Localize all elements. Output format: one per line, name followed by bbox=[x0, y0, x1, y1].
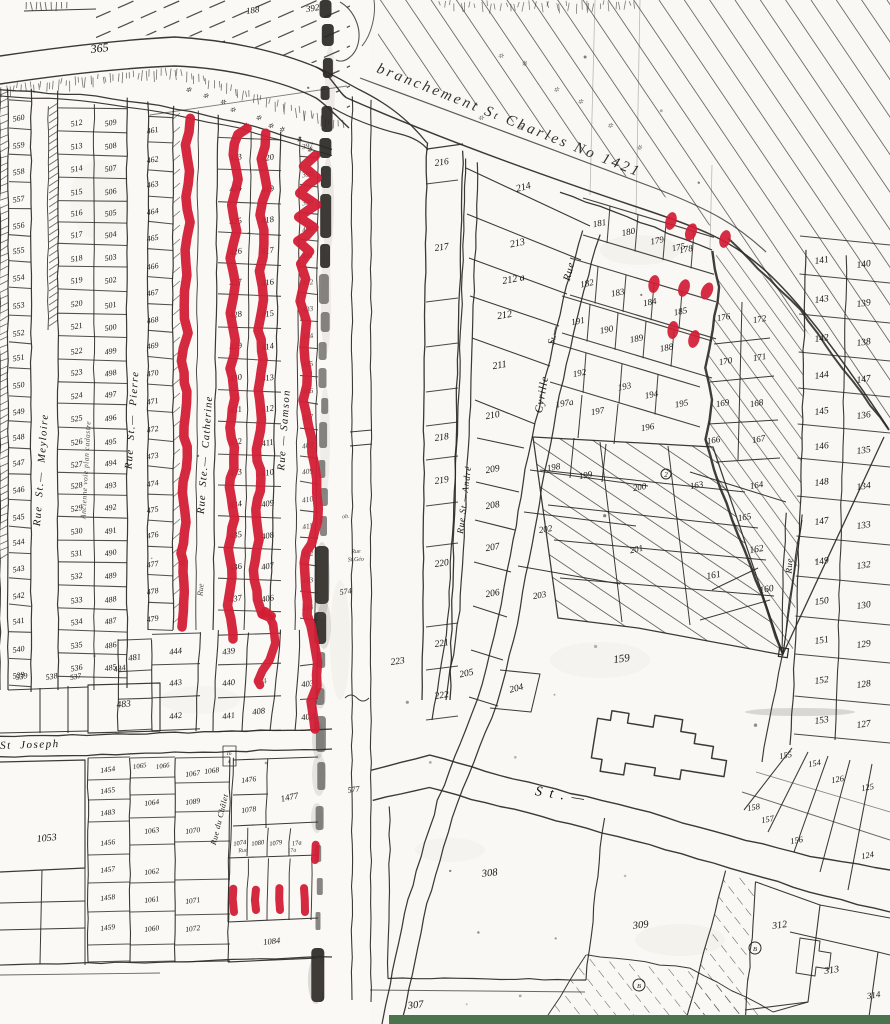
svg-text:144: 144 bbox=[814, 370, 830, 382]
svg-text:147: 147 bbox=[856, 374, 873, 386]
svg-text:Rue: Rue bbox=[783, 558, 794, 575]
svg-text:443: 443 bbox=[169, 677, 183, 689]
svg-text:17a: 17a bbox=[287, 848, 296, 855]
svg-text:481: 481 bbox=[128, 651, 142, 663]
svg-text:483: 483 bbox=[116, 699, 131, 710]
svg-text:ob.: ob. bbox=[342, 514, 350, 521]
svg-text:B: B bbox=[637, 983, 641, 990]
svg-text:142: 142 bbox=[814, 333, 830, 345]
svg-text:140: 140 bbox=[856, 259, 872, 271]
svg-text:408: 408 bbox=[252, 705, 267, 717]
svg-text:218: 218 bbox=[434, 432, 450, 444]
svg-text:128: 128 bbox=[856, 679, 872, 691]
svg-text:Rue: Rue bbox=[195, 583, 205, 598]
svg-text:132: 132 bbox=[856, 560, 872, 572]
svg-text:145: 145 bbox=[814, 406, 830, 418]
svg-text:152: 152 bbox=[814, 675, 830, 687]
svg-text:221: 221 bbox=[434, 638, 450, 650]
svg-text:143: 143 bbox=[814, 294, 830, 306]
svg-text:136: 136 bbox=[856, 410, 872, 422]
svg-text:147: 147 bbox=[814, 516, 831, 528]
svg-text:217: 217 bbox=[434, 242, 451, 254]
svg-text:134: 134 bbox=[856, 481, 872, 493]
svg-text:149: 149 bbox=[814, 556, 830, 568]
svg-text:153: 153 bbox=[814, 715, 830, 727]
svg-text:220: 220 bbox=[434, 558, 450, 570]
svg-text:441: 441 bbox=[222, 710, 236, 722]
svg-text:130: 130 bbox=[856, 600, 872, 612]
svg-text:135: 135 bbox=[856, 445, 872, 457]
svg-text:Rue: Rue bbox=[237, 848, 248, 855]
svg-text:444: 444 bbox=[169, 645, 184, 657]
svg-text:577: 577 bbox=[347, 784, 361, 795]
svg-text:1084: 1084 bbox=[263, 935, 282, 947]
svg-text:St.Géo: St.Géo bbox=[348, 557, 364, 564]
svg-text:440: 440 bbox=[222, 677, 237, 689]
svg-text:2: 2 bbox=[664, 471, 668, 479]
svg-text:223: 223 bbox=[390, 656, 406, 668]
svg-text:148: 148 bbox=[814, 477, 830, 489]
svg-text:313: 313 bbox=[822, 964, 839, 977]
svg-text:127: 127 bbox=[856, 719, 873, 731]
svg-text:1053: 1053 bbox=[36, 832, 57, 845]
svg-text:150: 150 bbox=[814, 596, 830, 608]
svg-text:392: 392 bbox=[304, 2, 320, 14]
svg-text:17a: 17a bbox=[291, 839, 302, 847]
svg-text:314: 314 bbox=[865, 989, 881, 1001]
svg-text:Rue: Rue bbox=[350, 549, 361, 556]
svg-text:439: 439 bbox=[222, 645, 237, 657]
svg-text:138: 138 bbox=[856, 337, 872, 349]
svg-text:B: B bbox=[753, 946, 757, 953]
svg-text:139: 139 bbox=[856, 298, 872, 310]
svg-text:365: 365 bbox=[89, 40, 109, 56]
svg-text:216: 216 bbox=[434, 157, 450, 169]
svg-text:146: 146 bbox=[814, 441, 830, 453]
svg-text:16: 16 bbox=[227, 752, 233, 757]
svg-text:308: 308 bbox=[480, 867, 499, 880]
svg-text:307: 307 bbox=[406, 999, 425, 1012]
svg-text:151: 151 bbox=[814, 635, 830, 647]
svg-text:141: 141 bbox=[814, 255, 830, 267]
svg-text:129: 129 bbox=[856, 639, 872, 651]
svg-text:188: 188 bbox=[245, 4, 260, 16]
svg-text:133: 133 bbox=[856, 520, 872, 532]
svg-text:312: 312 bbox=[770, 919, 787, 932]
svg-text:St Joseph: St Joseph bbox=[0, 738, 60, 752]
svg-text:219: 219 bbox=[434, 475, 450, 487]
